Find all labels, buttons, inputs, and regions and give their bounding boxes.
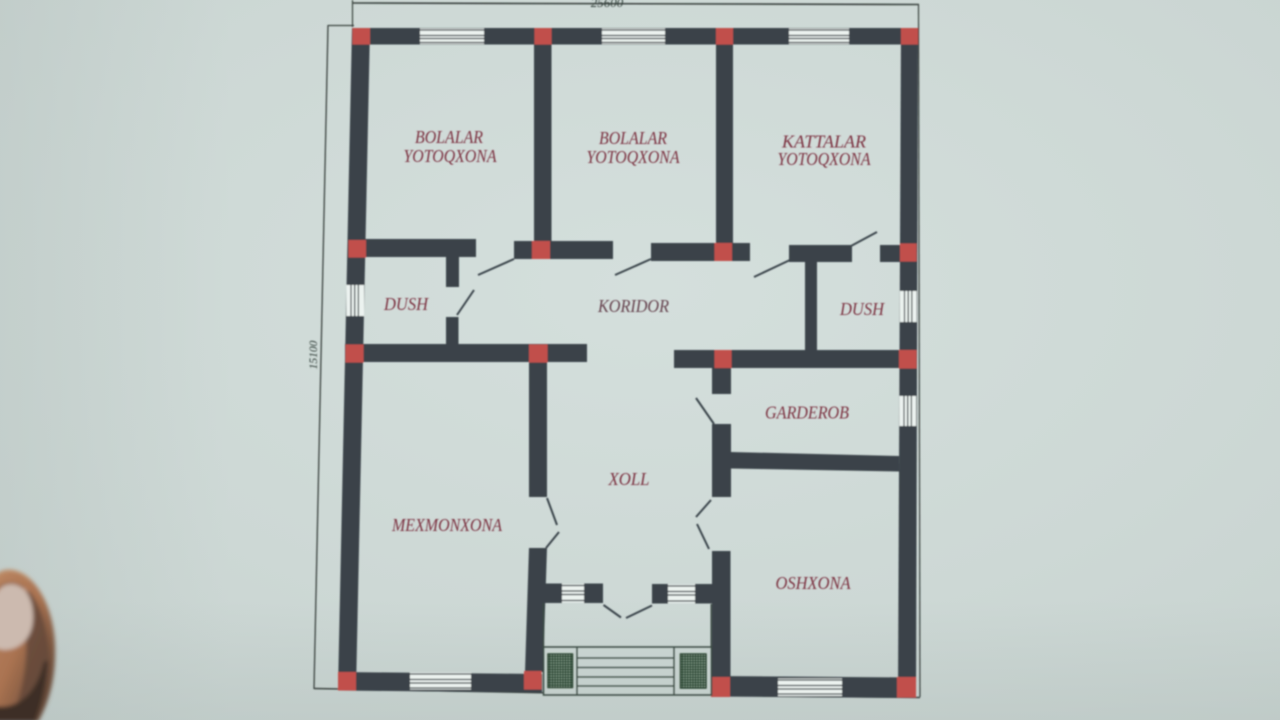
- svg-text:OSHXONA: OSHXONA: [776, 573, 851, 593]
- svg-text:GARDEROB: GARDEROB: [765, 403, 849, 423]
- svg-text:15100: 15100: [308, 340, 320, 369]
- svg-text:BOLALAR: BOLALAR: [415, 127, 483, 147]
- svg-text:YOTOQXONA: YOTOQXONA: [404, 146, 497, 166]
- svg-text:YOTOQXONA: YOTOQXONA: [587, 147, 680, 167]
- svg-text:YOTOQXONA: YOTOQXONA: [778, 149, 871, 169]
- svg-text:DUSH: DUSH: [383, 294, 429, 314]
- svg-text:XOLL: XOLL: [608, 469, 650, 489]
- svg-text:MEXMONXONA: MEXMONXONA: [391, 515, 502, 535]
- svg-text:KORIDOR: KORIDOR: [597, 296, 669, 316]
- svg-text:BOLALAR: BOLALAR: [599, 128, 667, 148]
- svg-text:DUSH: DUSH: [839, 299, 885, 319]
- svg-text:25600: 25600: [591, 0, 624, 10]
